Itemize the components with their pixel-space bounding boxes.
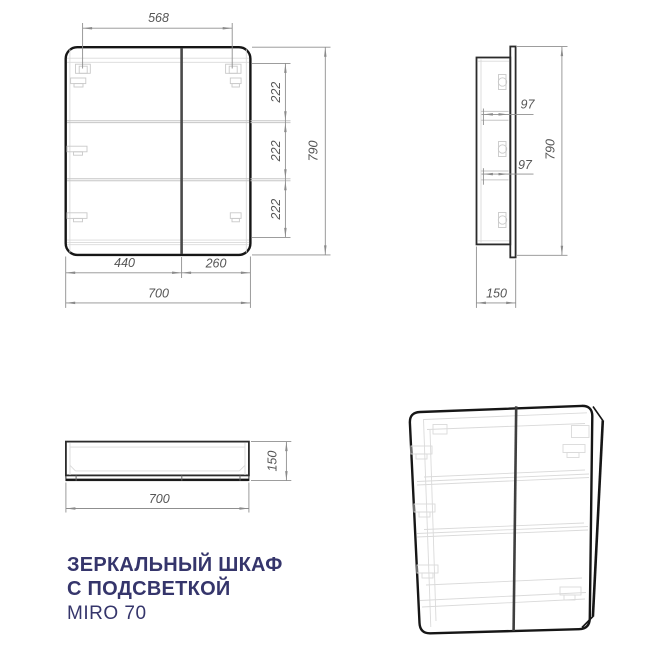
- svg-text:222: 222: [269, 140, 283, 162]
- svg-text:222: 222: [269, 82, 283, 104]
- svg-text:150: 150: [486, 286, 507, 300]
- svg-text:700: 700: [149, 492, 170, 506]
- svg-text:97: 97: [518, 158, 533, 172]
- svg-text:440: 440: [114, 256, 135, 270]
- svg-text:790: 790: [307, 141, 321, 162]
- svg-text:700: 700: [148, 286, 169, 300]
- svg-text:790: 790: [544, 139, 558, 160]
- svg-text:97: 97: [521, 98, 536, 112]
- svg-text:260: 260: [205, 257, 227, 271]
- svg-text:150: 150: [266, 451, 280, 472]
- svg-text:568: 568: [148, 11, 169, 25]
- svg-text:222: 222: [269, 199, 283, 221]
